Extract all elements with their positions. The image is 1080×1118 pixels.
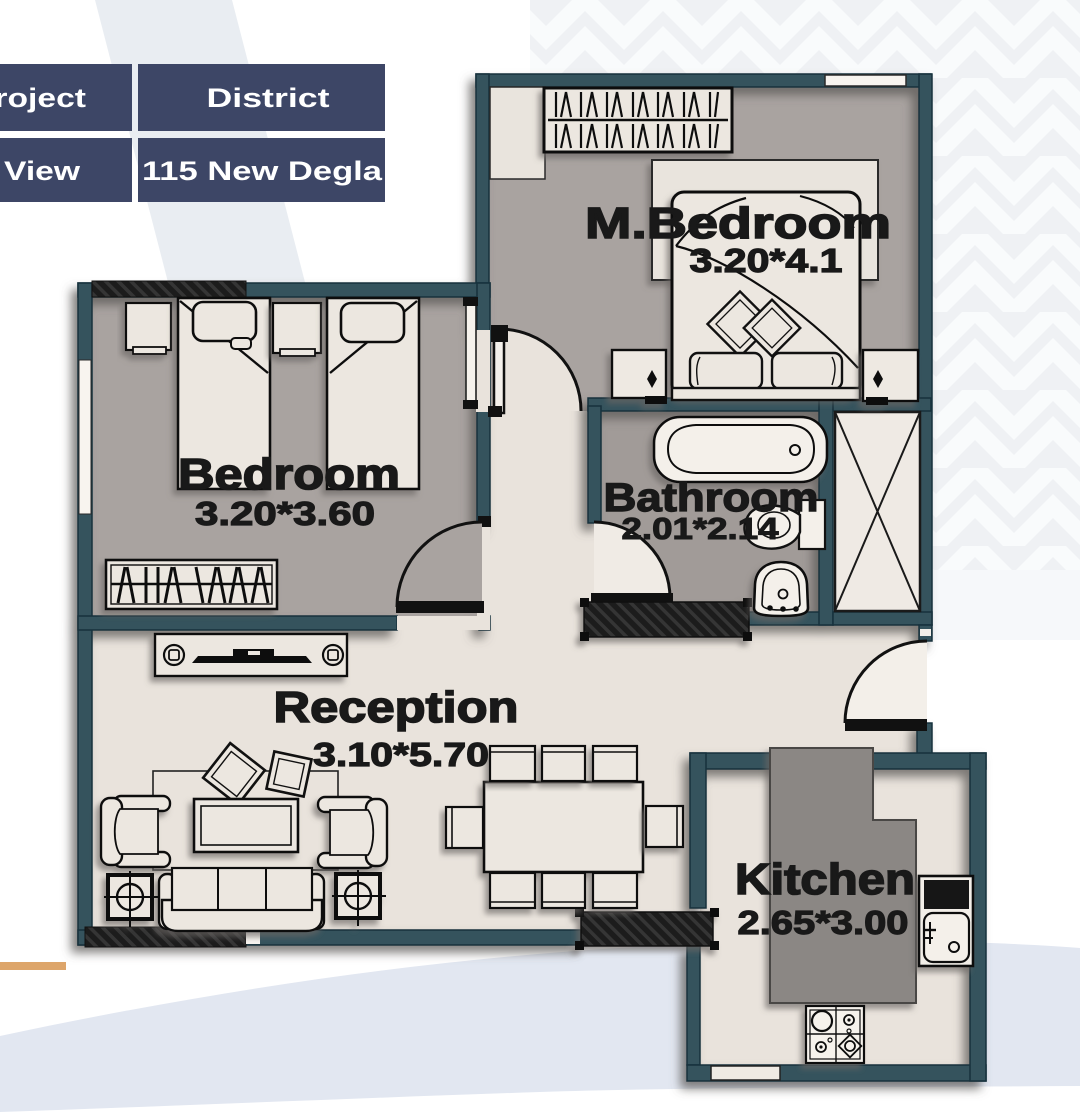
- svg-text:Project: Project: [0, 83, 86, 113]
- svg-text:3.10*5.70: 3.10*5.70: [313, 736, 489, 773]
- svg-text:District: District: [207, 83, 330, 113]
- svg-text:Kitchen: Kitchen: [735, 855, 915, 904]
- svg-text:115 New Degla: 115 New Degla: [142, 156, 383, 186]
- svg-text:Reception: Reception: [274, 683, 519, 732]
- svg-text:2.01*2.14: 2.01*2.14: [622, 511, 780, 546]
- svg-text:M.Bedroom: M.Bedroom: [585, 199, 891, 248]
- svg-text:Bedroom: Bedroom: [178, 450, 400, 499]
- svg-text:3.20*4.1: 3.20*4.1: [690, 242, 843, 279]
- svg-text:2.65*3.00: 2.65*3.00: [738, 904, 909, 941]
- svg-text:View: View: [4, 156, 81, 186]
- svg-text:3.20*3.60: 3.20*3.60: [195, 495, 375, 532]
